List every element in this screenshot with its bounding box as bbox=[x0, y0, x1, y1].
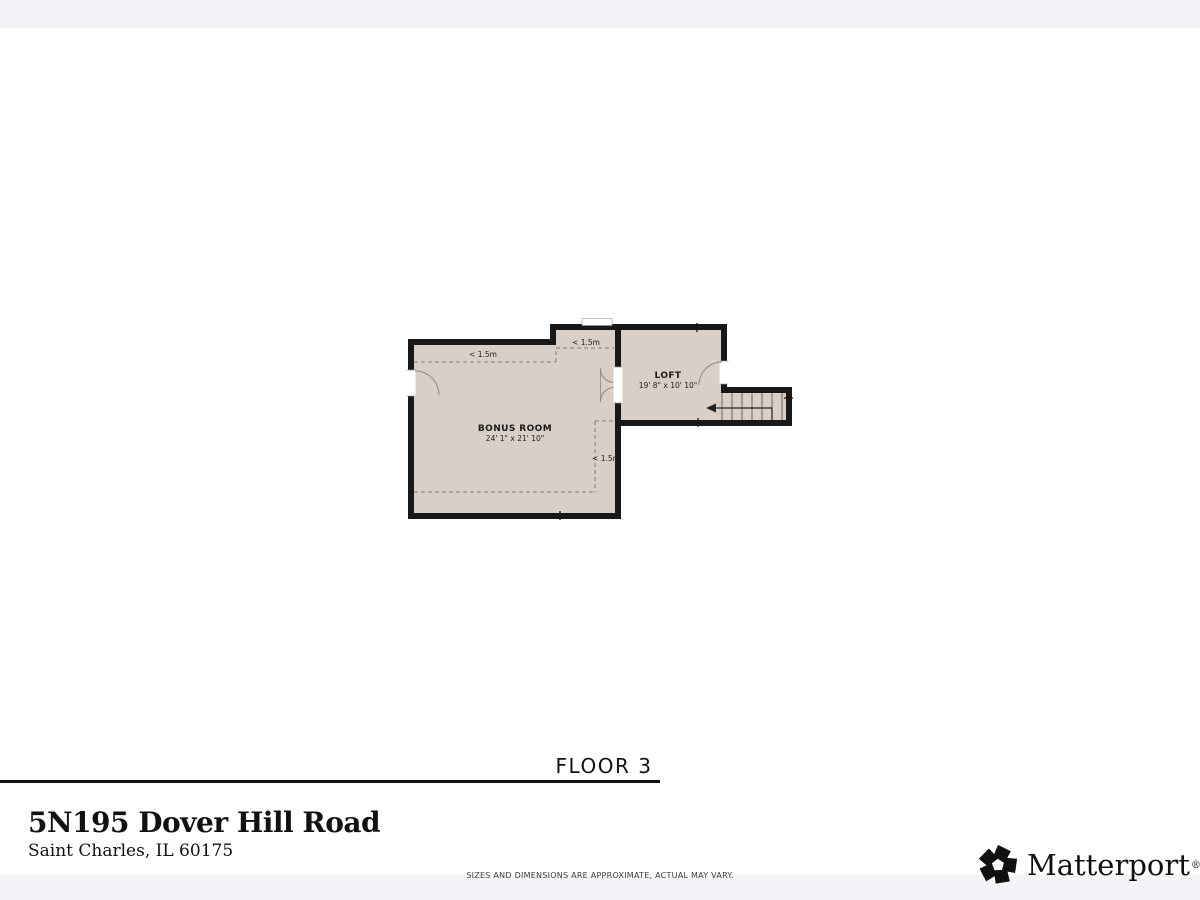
room-name-loft: LOFT bbox=[655, 371, 682, 381]
divider-line bbox=[0, 780, 660, 783]
room-dimensions-bonus-room: 24' 1" x 21' 10" bbox=[486, 434, 544, 443]
ceiling-height-label: < 1.5m bbox=[572, 338, 600, 347]
ceiling-height-label: < 1.5m bbox=[469, 350, 497, 359]
disclaimer-text: SIZES AND DIMENSIONS ARE APPROXIMATE, AC… bbox=[400, 871, 800, 880]
matterport-pinwheel-icon bbox=[976, 843, 1020, 887]
address-city: Saint Charles, IL 60175 bbox=[28, 840, 380, 862]
room-dimensions-loft: 19' 8" x 10' 10" bbox=[639, 381, 697, 390]
registered-trademark-symbol: ® bbox=[1191, 860, 1200, 871]
matterport-logo: Matterport® bbox=[976, 841, 1200, 889]
floor-area bbox=[411, 327, 789, 516]
room-name-bonus-room: BONUS ROOM bbox=[478, 424, 552, 434]
address-block: 5N195 Dover Hill Road Saint Charles, IL … bbox=[28, 807, 380, 862]
matterport-wordmark: Matterport bbox=[1027, 848, 1190, 882]
floor-label: FLOOR 3 bbox=[404, 754, 804, 778]
page: BONUS ROOM 24' 1" x 21' 10" LOFT 19' 8" … bbox=[0, 0, 1200, 900]
floor-plan: BONUS ROOM 24' 1" x 21' 10" LOFT 19' 8" … bbox=[390, 310, 810, 540]
ceiling-height-label: < 1.5m bbox=[592, 454, 620, 463]
window bbox=[582, 319, 612, 326]
floor-plan-sheet: BONUS ROOM 24' 1" x 21' 10" LOFT 19' 8" … bbox=[0, 28, 1200, 875]
address-street: 5N195 Dover Hill Road bbox=[28, 807, 380, 839]
